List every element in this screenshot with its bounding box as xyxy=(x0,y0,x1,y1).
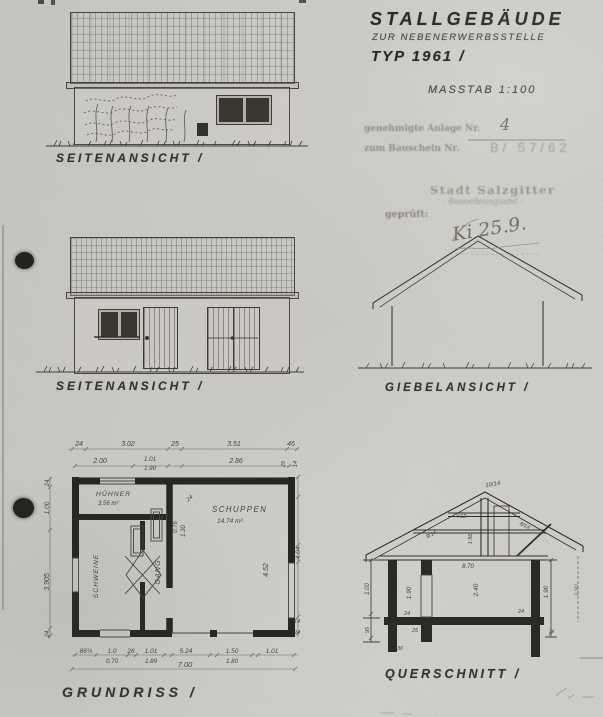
dim-label: 4/12 xyxy=(456,514,467,520)
room-area-huehner: 3.56 m² xyxy=(98,501,119,507)
dim-label: 1.30 xyxy=(181,525,187,537)
dim-label: 24 xyxy=(403,611,410,617)
dim-label: 25 xyxy=(170,441,179,448)
dim-label: 30 xyxy=(397,646,404,652)
double-door-right-leaf xyxy=(233,307,260,370)
side-elevation-top-window xyxy=(216,95,272,125)
room-label-schweine: SCHWEINE xyxy=(93,554,100,599)
dim-label: 10/14 xyxy=(485,481,501,490)
dim-label: 24 xyxy=(517,609,524,615)
dim-label: 1.56 xyxy=(468,533,474,545)
gable-elevation-drawing xyxy=(358,236,592,368)
dim-label: 1.89 xyxy=(145,658,158,665)
floor-plan-dimension-lines xyxy=(48,447,300,671)
dim-label: 4.04 xyxy=(295,546,302,559)
window-pane xyxy=(219,98,243,122)
dim-label: 0.76 xyxy=(173,521,179,533)
dim-label: 1.80 xyxy=(226,658,239,665)
dim-label: 1.50 xyxy=(226,648,239,655)
dim-label: 1.01 xyxy=(145,648,158,655)
dim-label: 5.24 xyxy=(180,648,193,655)
room-label-gang: GANG xyxy=(153,559,162,584)
dim-label: 3.02 xyxy=(121,441,135,448)
dim-label: 14 xyxy=(293,461,299,467)
stamp-department: - Bauordnungsamt - xyxy=(443,197,523,206)
dim-label: 2.00 xyxy=(92,458,107,465)
dim-label: 86½ xyxy=(80,647,93,655)
stamp-signature: Ki 25.9. xyxy=(451,212,528,245)
dim-label: 24 xyxy=(293,630,300,636)
dim-label: 1.90 xyxy=(574,584,580,596)
dim-label: 3.51 xyxy=(227,441,241,448)
stamp-approved-value: 4 xyxy=(500,115,510,134)
dim-label: 25 xyxy=(281,460,287,468)
window-pane xyxy=(246,98,270,122)
dim-label: 25 xyxy=(411,628,419,634)
section-wall-outlines xyxy=(363,556,578,642)
side-elevation-top-roof xyxy=(70,12,295,84)
drawing-type: TYP 1961 / xyxy=(371,48,466,65)
floor-plan-walls xyxy=(72,477,295,637)
section-dimension-labels: 10/14 8/14 4/12 8/14 1.56 8.70 1.90 2.40… xyxy=(365,481,580,652)
floor-plan-room-labels: HÜHNER 3.56 m² SCHWEINE GANG SCHUPPEN 14… xyxy=(93,490,267,598)
dim-label: 8/14 xyxy=(518,521,530,531)
side-elevation-middle-window xyxy=(98,309,140,340)
dim-label: 26 xyxy=(126,648,135,655)
floor-plan-openings xyxy=(72,478,295,637)
section-label: QUERSCHNITT / xyxy=(385,667,521,681)
floor-plan-dimension-labels: 24 3.02 25 3.51 46 2.00 1.01 1.90 2.86 2… xyxy=(44,441,302,669)
dim-label: 1.90 xyxy=(144,465,157,472)
stamp-permit-label: zum Bauschein Nr. xyxy=(364,144,459,154)
side-elevation-middle-roof xyxy=(70,237,295,296)
scan-top-mark xyxy=(299,0,306,3)
drawing-subtitle: ZUR NEBENERWERBSSTELLE xyxy=(372,32,545,43)
dim-label: 24 xyxy=(45,479,51,487)
drawing-scale: MASSTAB 1:100 xyxy=(428,84,536,96)
dim-label: 1.00 xyxy=(44,501,51,514)
dim-label: 2.86 xyxy=(228,458,243,465)
dim-label: 1.0 xyxy=(107,648,116,655)
section-truss xyxy=(366,492,583,562)
room-label-huehner: HÜHNER xyxy=(96,490,131,498)
stamp-approved-label: genehmigte Anlage Nr. xyxy=(364,124,480,134)
gable-elevation-label: GIEBELANSICHT / xyxy=(385,382,530,394)
scan-top-mark xyxy=(38,0,44,4)
dim-label: 3.905 xyxy=(44,573,51,591)
side-elevation-top-label: SEITENANSICHT / xyxy=(56,151,204,165)
dim-label-total: 7.00 xyxy=(178,660,193,669)
dim-label: 26 xyxy=(548,629,555,635)
dim-label: 46 xyxy=(287,441,295,448)
single-door xyxy=(143,307,178,369)
dim-label: .24 xyxy=(184,494,194,504)
scan-top-mark xyxy=(51,0,55,5)
floor-plan-label: GRUNDRISS / xyxy=(62,684,198,700)
stamp-checked-label: geprüft: xyxy=(385,209,428,220)
double-door-left-leaf xyxy=(207,307,234,370)
dim-label: 4.52 xyxy=(263,563,270,577)
room-area-schuppen: 14.74 m² xyxy=(217,518,243,525)
punch-hole-bottom xyxy=(13,498,34,518)
stamp-permit-value: B/ 57/62 xyxy=(490,140,570,155)
dim-label: 24 xyxy=(74,441,83,448)
drawing-title: STALLGEBÄUDE xyxy=(370,9,565,30)
dim-label: 1.90 xyxy=(406,586,413,599)
side-elevation-top-hatch xyxy=(197,123,208,136)
dim-label: 8.70 xyxy=(462,564,474,570)
dim-label: 1.90 xyxy=(543,585,550,598)
section-walls xyxy=(384,560,544,657)
scanned-drawing-page: STALLGEBÄUDE ZUR NEBENERWERBSSTELLE TYP … xyxy=(0,0,603,717)
stamp-authority: Stadt Salzgitter xyxy=(430,183,556,197)
dim-label: 2.40 xyxy=(473,583,480,597)
dim-label: 95 xyxy=(365,626,371,633)
window-pane xyxy=(101,312,118,337)
side-elevation-middle-label: SEITENANSICHT / xyxy=(56,379,204,393)
punch-hole-top xyxy=(15,252,34,269)
scan-edge-line xyxy=(2,225,4,610)
dim-label: 1.01 xyxy=(144,456,156,463)
dim-label: 24 xyxy=(45,630,51,638)
dim-label: 1.00 xyxy=(365,583,371,595)
room-label-schuppen: SCHUPPEN xyxy=(212,505,267,514)
dim-label: 14 xyxy=(294,619,300,625)
window-pane xyxy=(121,312,138,337)
dim-label: 0.70 xyxy=(106,658,119,665)
dim-label: 8/14 xyxy=(425,530,437,540)
dim-label: 1.01 xyxy=(266,648,279,655)
